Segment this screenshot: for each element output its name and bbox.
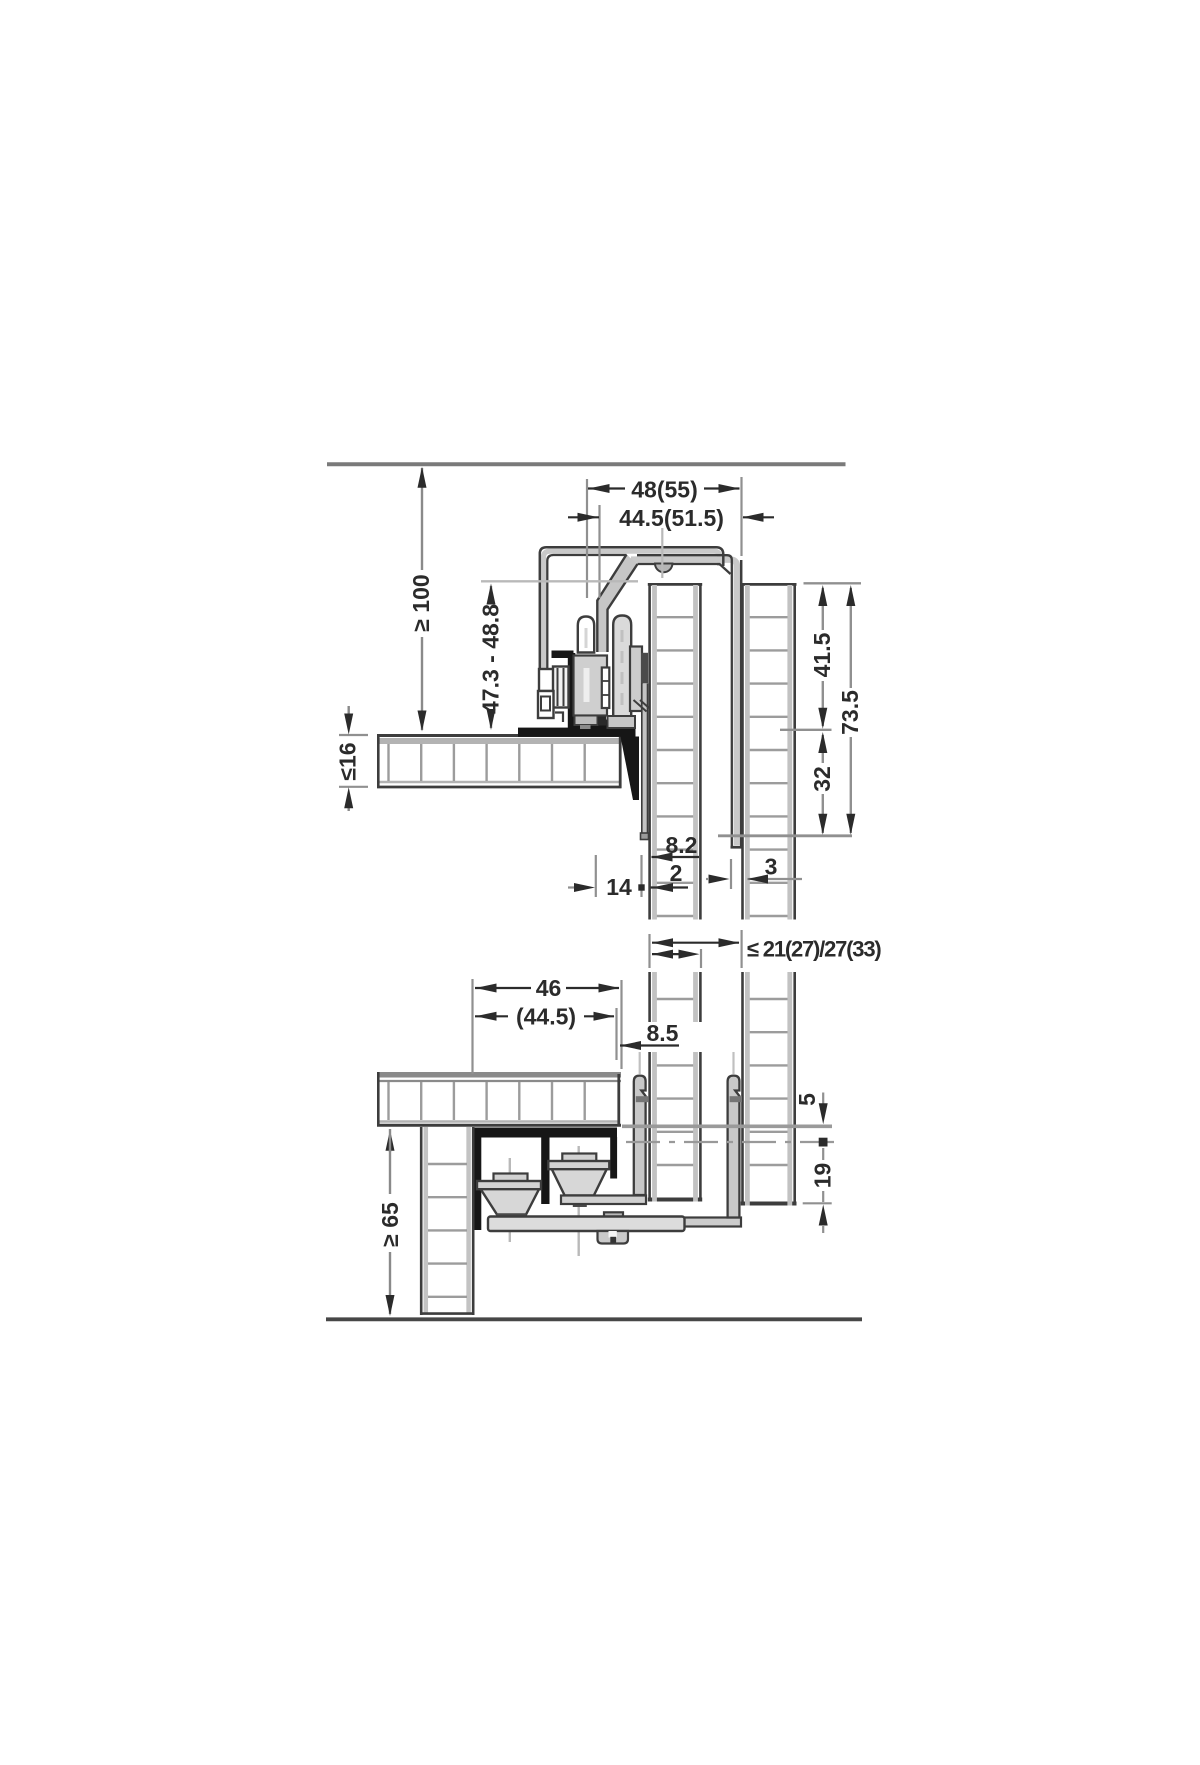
- svg-text:3: 3: [765, 854, 778, 880]
- svg-text:48(55): 48(55): [631, 477, 697, 503]
- svg-text:≤ 21(27)/27(33): ≤ 21(27)/27(33): [747, 937, 881, 962]
- svg-text:46: 46: [536, 975, 562, 1001]
- svg-text:5: 5: [794, 1093, 820, 1106]
- svg-text:73.5: 73.5: [837, 690, 863, 735]
- svg-text:≥ 65: ≥ 65: [377, 1202, 403, 1247]
- svg-text:(44.5): (44.5): [516, 1004, 576, 1030]
- svg-text:19: 19: [810, 1163, 836, 1189]
- svg-text:2: 2: [670, 860, 683, 886]
- svg-text:41.5: 41.5: [809, 632, 835, 677]
- svg-text:≥ 100: ≥ 100: [408, 574, 434, 631]
- svg-text:32: 32: [809, 766, 835, 792]
- svg-text:14: 14: [606, 874, 632, 900]
- svg-text:≤16: ≤16: [335, 742, 361, 780]
- svg-text:8.2: 8.2: [666, 832, 698, 858]
- svg-text:8.5: 8.5: [647, 1020, 679, 1046]
- svg-text:47.3 - 48.8: 47.3 - 48.8: [478, 604, 504, 714]
- svg-text:44.5(51.5): 44.5(51.5): [619, 505, 724, 531]
